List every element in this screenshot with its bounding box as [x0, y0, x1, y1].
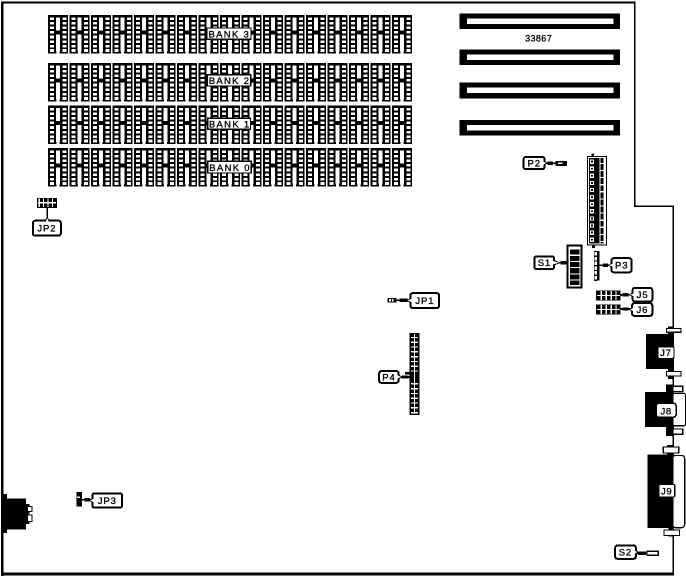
svg-text:JP2: JP2: [37, 224, 56, 235]
svg-text:J7: J7: [660, 348, 671, 359]
svg-text:J5: J5: [637, 290, 649, 301]
svg-text:J9: J9: [661, 487, 672, 498]
svg-text:JP1: JP1: [415, 296, 434, 307]
svg-text:BANK 1: BANK 1: [209, 120, 251, 131]
svg-text:BANK 0: BANK 0: [209, 163, 251, 174]
svg-text:S2: S2: [619, 548, 632, 559]
svg-text:JP3: JP3: [98, 496, 117, 507]
svg-text:S1: S1: [538, 258, 551, 269]
svg-text:BANK 3: BANK 3: [209, 30, 251, 41]
svg-text:P2: P2: [527, 159, 540, 170]
svg-text:BANK 2: BANK 2: [209, 76, 251, 87]
svg-text:P3: P3: [615, 261, 628, 272]
svg-text:J6: J6: [636, 305, 648, 316]
svg-text:P4: P4: [382, 372, 395, 383]
svg-text:33867: 33867: [525, 34, 552, 44]
svg-text:J8: J8: [660, 406, 671, 417]
